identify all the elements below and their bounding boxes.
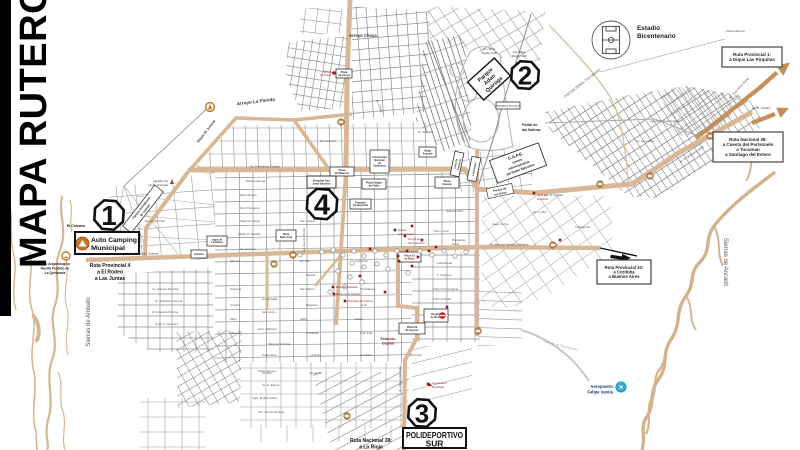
svg-text:Vega Cortes: Vega Cortes [492, 222, 509, 226]
svg-text:Mercado Artesanal: Mercado Artesanal [336, 285, 358, 289]
svg-text:Maipu: Maipu [355, 317, 364, 321]
svg-text:Ayuda A. Quanta Ertis: Ayuda A. Quanta Ertis [650, 119, 680, 123]
svg-text:Alberdi: Alberdi [230, 331, 240, 335]
svg-text:Lamanera: Lamanera [211, 241, 223, 244]
svg-text:Catamarca: Catamarca [373, 165, 386, 168]
svg-text:2: 2 [518, 60, 532, 90]
svg-text:Ruta Provincial 4: Ruta Provincial 4 [90, 263, 131, 269]
svg-text:9 de Julio: 9 de Julio [360, 331, 373, 335]
svg-text:Rocas del Pilar: Rocas del Pilar [145, 219, 165, 223]
svg-text:Sitio Arqueologico: Sitio Arqueologico [40, 262, 70, 266]
svg-text:Maipu R. Castillo: Maipu R. Castillo [238, 232, 261, 236]
svg-text:M. de Salta: M. de Salta [418, 130, 434, 134]
svg-text:W. Rosardo Khuma: W. Rosardo Khuma [152, 310, 178, 314]
svg-text:a Buenos Aires: a Buenos Aires [608, 274, 640, 279]
svg-text:Aeropuerto: Aeropuerto [590, 384, 613, 389]
svg-text:Chubut: Chubut [262, 371, 272, 375]
svg-text:a La Rioja: a La Rioja [359, 445, 383, 450]
svg-text:Marta Quiroga: Marta Quiroga [246, 179, 266, 183]
svg-text:Arqueologicas: Arqueologicas [398, 232, 415, 236]
svg-text:Municipal: Municipal [91, 245, 125, 252]
svg-text:Hiyas Giongas: Hiyas Giongas [148, 183, 168, 187]
svg-text:Ayacucho: Ayacucho [355, 259, 368, 263]
svg-text:Av. Recalde: Av. Recalde [262, 297, 278, 301]
svg-text:Neuquen: Neuquen [310, 371, 323, 375]
svg-text:Sierras de Ancasti: Sierras de Ancasti [722, 238, 728, 286]
svg-text:Av. Guemes: Av. Guemes [240, 247, 257, 251]
svg-text:Iglesia: Iglesia [324, 70, 332, 74]
svg-text:de Choya: de Choya [320, 73, 332, 77]
svg-text:Sgto. B. Bermudez: Sgto. B. Bermudez [252, 396, 278, 400]
svg-text:SUR: SUR [426, 439, 444, 449]
svg-text:Municipal: Municipal [432, 385, 444, 389]
svg-text:Escuela: Escuela [423, 151, 433, 155]
svg-text:de Choya: de Choya [338, 73, 350, 77]
svg-text:Club Matriz Catamarca: Club Matriz Catamarca [496, 104, 520, 107]
svg-text:4: 4 [314, 189, 330, 221]
svg-text:Portal de: Portal de [522, 123, 537, 127]
svg-text:Moreno: Moreno [230, 259, 241, 263]
svg-text:Parroquia de Turismo: Parroquia de Turismo [348, 299, 373, 303]
svg-text:Juan Bautista: Juan Bautista [312, 182, 331, 186]
svg-text:Arroyo Choya: Arroyo Choya [349, 33, 377, 38]
svg-text:Saler Geta: Saler Geta [280, 236, 293, 239]
svg-text:Norte: Norte [452, 242, 460, 246]
svg-text:a Santiago del Estero: a Santiago del Estero [725, 152, 771, 157]
svg-text:1: 1 [101, 200, 117, 231]
svg-text:Av. H. Illanes: Av. H. Illanes [262, 383, 280, 387]
svg-text:San Francisco: San Francisco [408, 241, 425, 245]
svg-text:La Rioja: La Rioja [310, 353, 321, 357]
svg-text:Junin: Junin [360, 303, 368, 307]
svg-text:Casa de: Casa de [537, 193, 547, 197]
svg-text:Guemes: Guemes [194, 253, 204, 256]
svg-text:Tucuman: Tucuman [306, 331, 319, 335]
svg-text:3: 3 [415, 398, 429, 428]
svg-text:Piedra Blanca: Piedra Blanca [726, 29, 745, 33]
svg-text:Mitre: Mitre [230, 317, 237, 321]
svg-text:Sierras de Ambato: Sierras de Ambato [86, 297, 92, 347]
svg-text:Caseros: Caseros [230, 287, 242, 291]
svg-text:Urquiza: Urquiza [230, 303, 241, 307]
svg-text:a Las Juntas: a Las Juntas [95, 276, 126, 282]
svg-text:Cordoba: Cordoba [360, 353, 372, 357]
svg-text:Auto Camping: Auto Camping [91, 237, 137, 244]
svg-text:Tula y Luna: Tula y Luna [433, 229, 449, 233]
svg-text:San Martin: San Martin [300, 287, 315, 291]
svg-text:El Calvario: El Calvario [67, 224, 86, 228]
svg-text:Lidia Bredo: Lidia Bredo [437, 261, 453, 265]
svg-text:del Maestro: del Maestro [335, 171, 350, 175]
svg-text:Capital: Capital [382, 342, 394, 346]
svg-text:Av. Illia: Av. Illia [300, 259, 310, 263]
svg-text:Espana: Espana [442, 182, 452, 186]
svg-text:la Cultura: la Cultura [537, 197, 549, 201]
svg-text:Andalgonia: Andalgonia [575, 225, 590, 229]
svg-text:Rio Cosquin: Rio Cosquin [320, 139, 337, 143]
svg-text:Segundo Roya: Segundo Roya [240, 219, 260, 223]
svg-text:Sar. Cabral: Sar. Cabral [300, 219, 315, 223]
svg-text:Ruta Nacional 38:: Ruta Nacional 38: [350, 438, 392, 444]
svg-text:Ruinas: Ruinas [398, 228, 407, 232]
svg-text:Iglesia de la Catedral: Iglesia de la Catedral [336, 292, 361, 296]
svg-text:Rugby Club: Rugby Club [482, 51, 497, 55]
svg-text:Av. El Chiqui Guardia: Av. El Chiqui Guardia [130, 252, 159, 256]
svg-text:a El Rodeo: a El Rodeo [97, 270, 123, 276]
svg-text:Av. P. Castillo: Av. P. Castillo [545, 193, 563, 197]
svg-text:San Isidro: San Isidro [262, 310, 276, 314]
svg-text:de Mayo: de Mayo [404, 256, 415, 260]
svg-text:Av. Antonio Del Pino: Av. Antonio Del Pino [152, 287, 179, 291]
svg-text:Cnel. A. Guzman: Cnel. A. Guzman [155, 322, 178, 326]
svg-text:Catamarca: Catamarca [262, 353, 277, 357]
svg-text:Gob. Galindez: Gob. Galindez [258, 327, 278, 331]
svg-text:Dr. Gahardo Laguna: Dr. Gahardo Laguna [155, 299, 183, 303]
svg-text:Salta: Salta [300, 317, 307, 321]
svg-text:Estadio: Estadio [637, 25, 660, 32]
svg-text:Av. R. Castillo: Av. R. Castillo [752, 106, 771, 110]
svg-text:de Agosto: de Agosto [405, 328, 418, 332]
svg-text:Av. Juan D. Peron: Av. Juan D. Peron [302, 228, 306, 252]
svg-text:Esquiu: Esquiu [306, 273, 316, 277]
svg-text:Julio Herrera: Julio Herrera [446, 209, 464, 213]
svg-text:Maximio Victoria: Maximio Victoria [268, 342, 290, 346]
svg-text:F. Caseros: F. Caseros [437, 273, 452, 277]
svg-text:del Valle: del Valle [369, 183, 380, 187]
svg-text:Felipe Varela: Felipe Varela [587, 390, 613, 395]
svg-text:La Quebrada: La Quebrada [45, 271, 66, 275]
svg-text:Av. Presidente Castillo: Av. Presidente Castillo [250, 165, 280, 169]
svg-text:Fundacional: Fundacional [353, 204, 368, 207]
svg-text:las Salinas: las Salinas [522, 128, 541, 132]
svg-text:Av. A. Illia: Av. A. Illia [533, 210, 546, 214]
svg-text:Rugby Club: Rugby Club [512, 54, 527, 58]
svg-text:Estacion: Estacion [381, 337, 396, 341]
svg-text:Tufin O.S.O Garcia: Tufin O.S.O Garcia [433, 287, 459, 291]
svg-text:Av. Las Heras: Av. Las Heras [636, 139, 655, 143]
svg-text:Huella Perdido de: Huella Perdido de [41, 267, 70, 271]
svg-text:Om. Clementa Rojo: Om. Clementa Rojo [258, 410, 285, 414]
svg-text:MAPA RUTERO: MAPA RUTERO [13, 0, 55, 268]
svg-text:Av. Virgen del Valle: Av. Virgen del Valle [398, 366, 402, 392]
svg-text:a Dique Las Pirquitas: a Dique Las Pirquitas [729, 57, 775, 62]
svg-text:Chacabuco: Chacabuco [360, 287, 376, 291]
svg-text:Belgrano: Belgrano [306, 303, 318, 307]
svg-text:Ruiz Penaloza: Ruiz Penaloza [240, 206, 260, 210]
svg-text:Formosa: Formosa [410, 353, 422, 357]
svg-text:Av. Manuel Navarro Villafane: Av. Manuel Navarro Villafane [490, 243, 529, 247]
svg-text:Mota Botello: Mota Botello [240, 193, 257, 197]
svg-text:Bicentenario: Bicentenario [637, 33, 676, 40]
svg-text:Templo de: Templo de [408, 237, 421, 241]
svg-text:Tufin di Matta: Tufin di Matta [433, 297, 451, 301]
